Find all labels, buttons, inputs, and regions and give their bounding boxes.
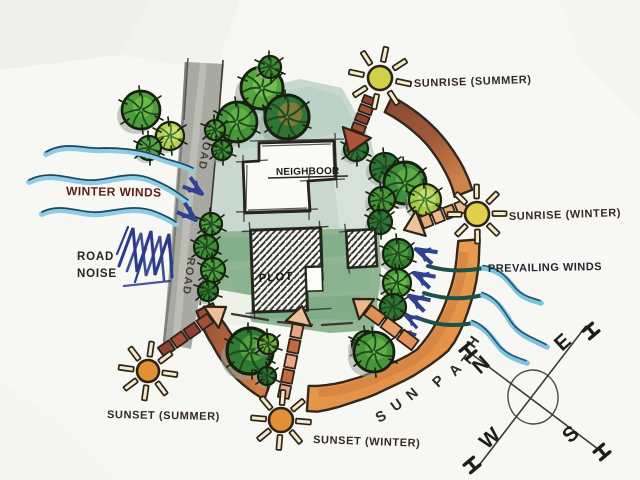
svg-text:SUNSET (SUMMER): SUNSET (SUMMER) (107, 409, 220, 423)
svg-text:ROAD: ROAD (77, 251, 114, 263)
svg-text:PLOT: PLOT (258, 271, 293, 285)
svg-text:NOISE: NOISE (77, 268, 117, 280)
svg-text:WINTER WINDS: WINTER WINDS (66, 184, 162, 200)
svg-text:PREVAILING WINDS: PREVAILING WINDS (488, 261, 602, 275)
